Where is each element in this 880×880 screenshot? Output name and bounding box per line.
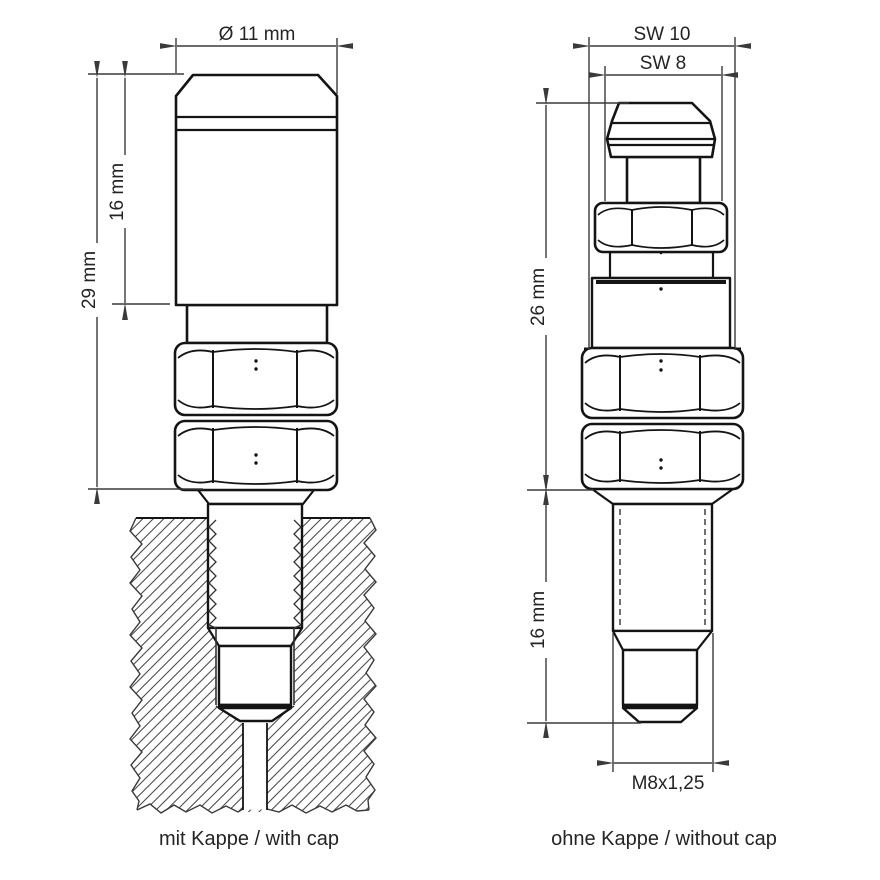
dim-label-cap-height: 16 mm bbox=[107, 163, 128, 221]
hex-lower-right bbox=[582, 424, 743, 489]
figure-without-cap: SW 10 SW 8 26 mm 16 mm M8x1,25 ohne Kapp… bbox=[527, 24, 777, 850]
dim-label-thread-spec: M8x1,25 bbox=[632, 773, 705, 794]
cap-collar bbox=[187, 305, 327, 343]
valve-tip-right bbox=[623, 650, 697, 705]
hex-upper bbox=[175, 343, 337, 415]
caption-without-cap: ohne Kappe / without cap bbox=[551, 828, 777, 850]
hex-upper-right bbox=[582, 348, 743, 418]
dim-label-sw8: SW 8 bbox=[640, 53, 686, 74]
dim-label-diameter: Ø 11 mm bbox=[219, 24, 296, 45]
nipple-hex bbox=[595, 203, 727, 252]
valve-tip bbox=[219, 646, 291, 705]
dim-label-upper-height: 26 mm bbox=[528, 268, 549, 326]
figure-with-cap: Ø 11 mm 16 mm 29 mm mit Kappe / with cap bbox=[79, 24, 376, 850]
nipple-head bbox=[607, 103, 715, 157]
stem-collar bbox=[610, 252, 713, 278]
technical-drawing-canvas: Ø 11 mm 16 mm 29 mm mit Kappe / with cap bbox=[0, 0, 880, 880]
threaded-shank-right bbox=[613, 504, 712, 631]
flange-taper-right bbox=[592, 489, 733, 504]
dim-label-sw10: SW 10 bbox=[633, 24, 690, 45]
nipple-neck bbox=[627, 157, 700, 203]
shank-chamfer-right bbox=[613, 631, 712, 650]
threaded-shank bbox=[208, 504, 302, 628]
bleed-screw-drawing: Ø 11 mm 16 mm 29 mm mit Kappe / with cap bbox=[0, 0, 880, 880]
bore-channel bbox=[243, 723, 267, 810]
shank-chamfer bbox=[208, 628, 302, 646]
tip-cone-right bbox=[623, 708, 697, 722]
caption-with-cap: mit Kappe / with cap bbox=[159, 828, 339, 850]
dim-label-thread-length: 16 mm bbox=[528, 591, 549, 649]
dim-label-overall-height: 29 mm bbox=[79, 251, 100, 309]
dust-cap bbox=[176, 75, 337, 305]
flange-taper bbox=[198, 490, 314, 504]
screw-without-cap bbox=[582, 103, 743, 705]
